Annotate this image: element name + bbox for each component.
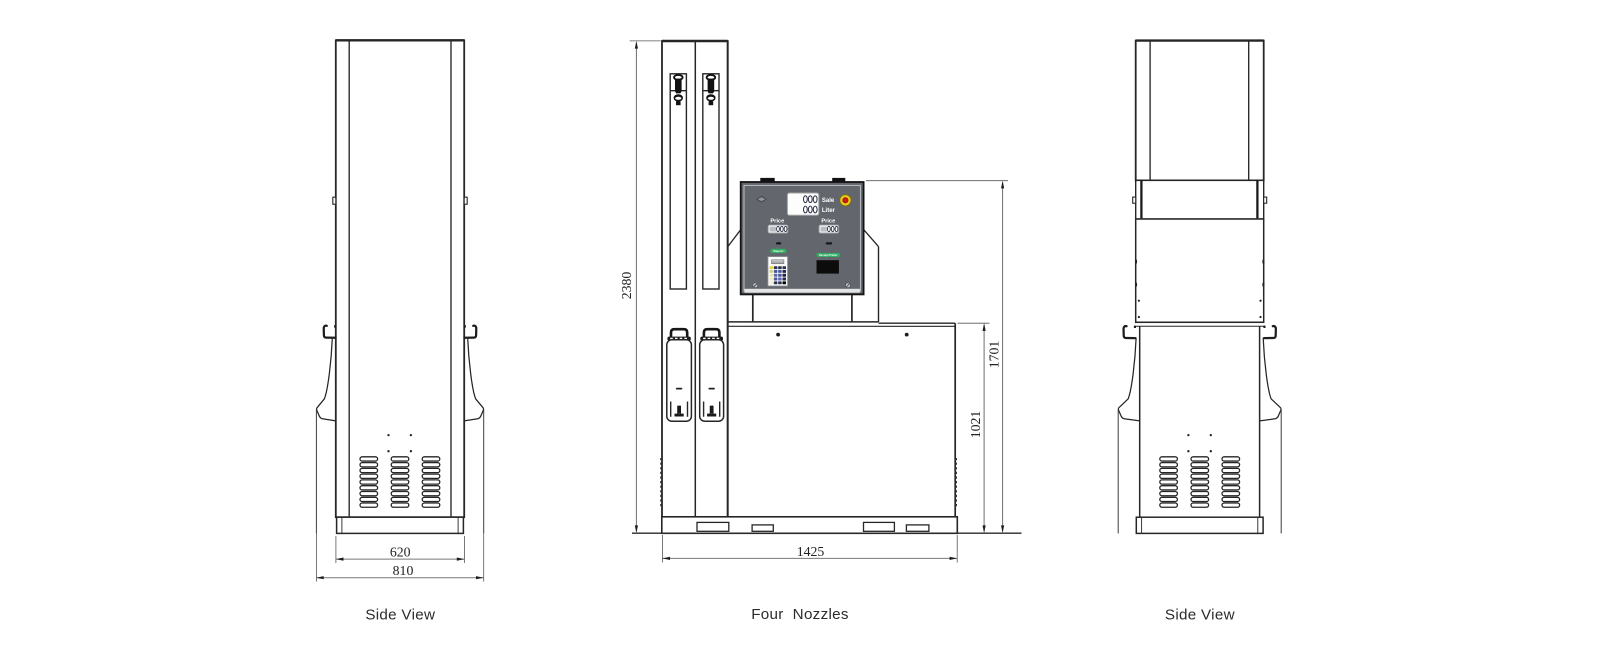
svg-text:Sale: Sale xyxy=(822,198,835,204)
svg-text:2380: 2380 xyxy=(619,272,634,300)
svg-text:Four Nozzles: Four Nozzles xyxy=(751,606,849,623)
svg-text:Report: Report xyxy=(773,249,783,253)
svg-text:1021: 1021 xyxy=(968,411,983,439)
svg-text:Receipt Printer: Receipt Printer xyxy=(819,253,837,257)
svg-text:Liter: Liter xyxy=(822,208,836,214)
svg-text:1425: 1425 xyxy=(797,544,825,559)
svg-text:1701: 1701 xyxy=(986,341,1001,369)
svg-text:Side View: Side View xyxy=(365,606,435,623)
svg-text:Side View: Side View xyxy=(1165,606,1235,623)
svg-text:620: 620 xyxy=(390,545,411,560)
svg-text:Price: Price xyxy=(821,218,835,224)
svg-text:810: 810 xyxy=(393,563,414,578)
svg-text:Price: Price xyxy=(770,218,784,224)
